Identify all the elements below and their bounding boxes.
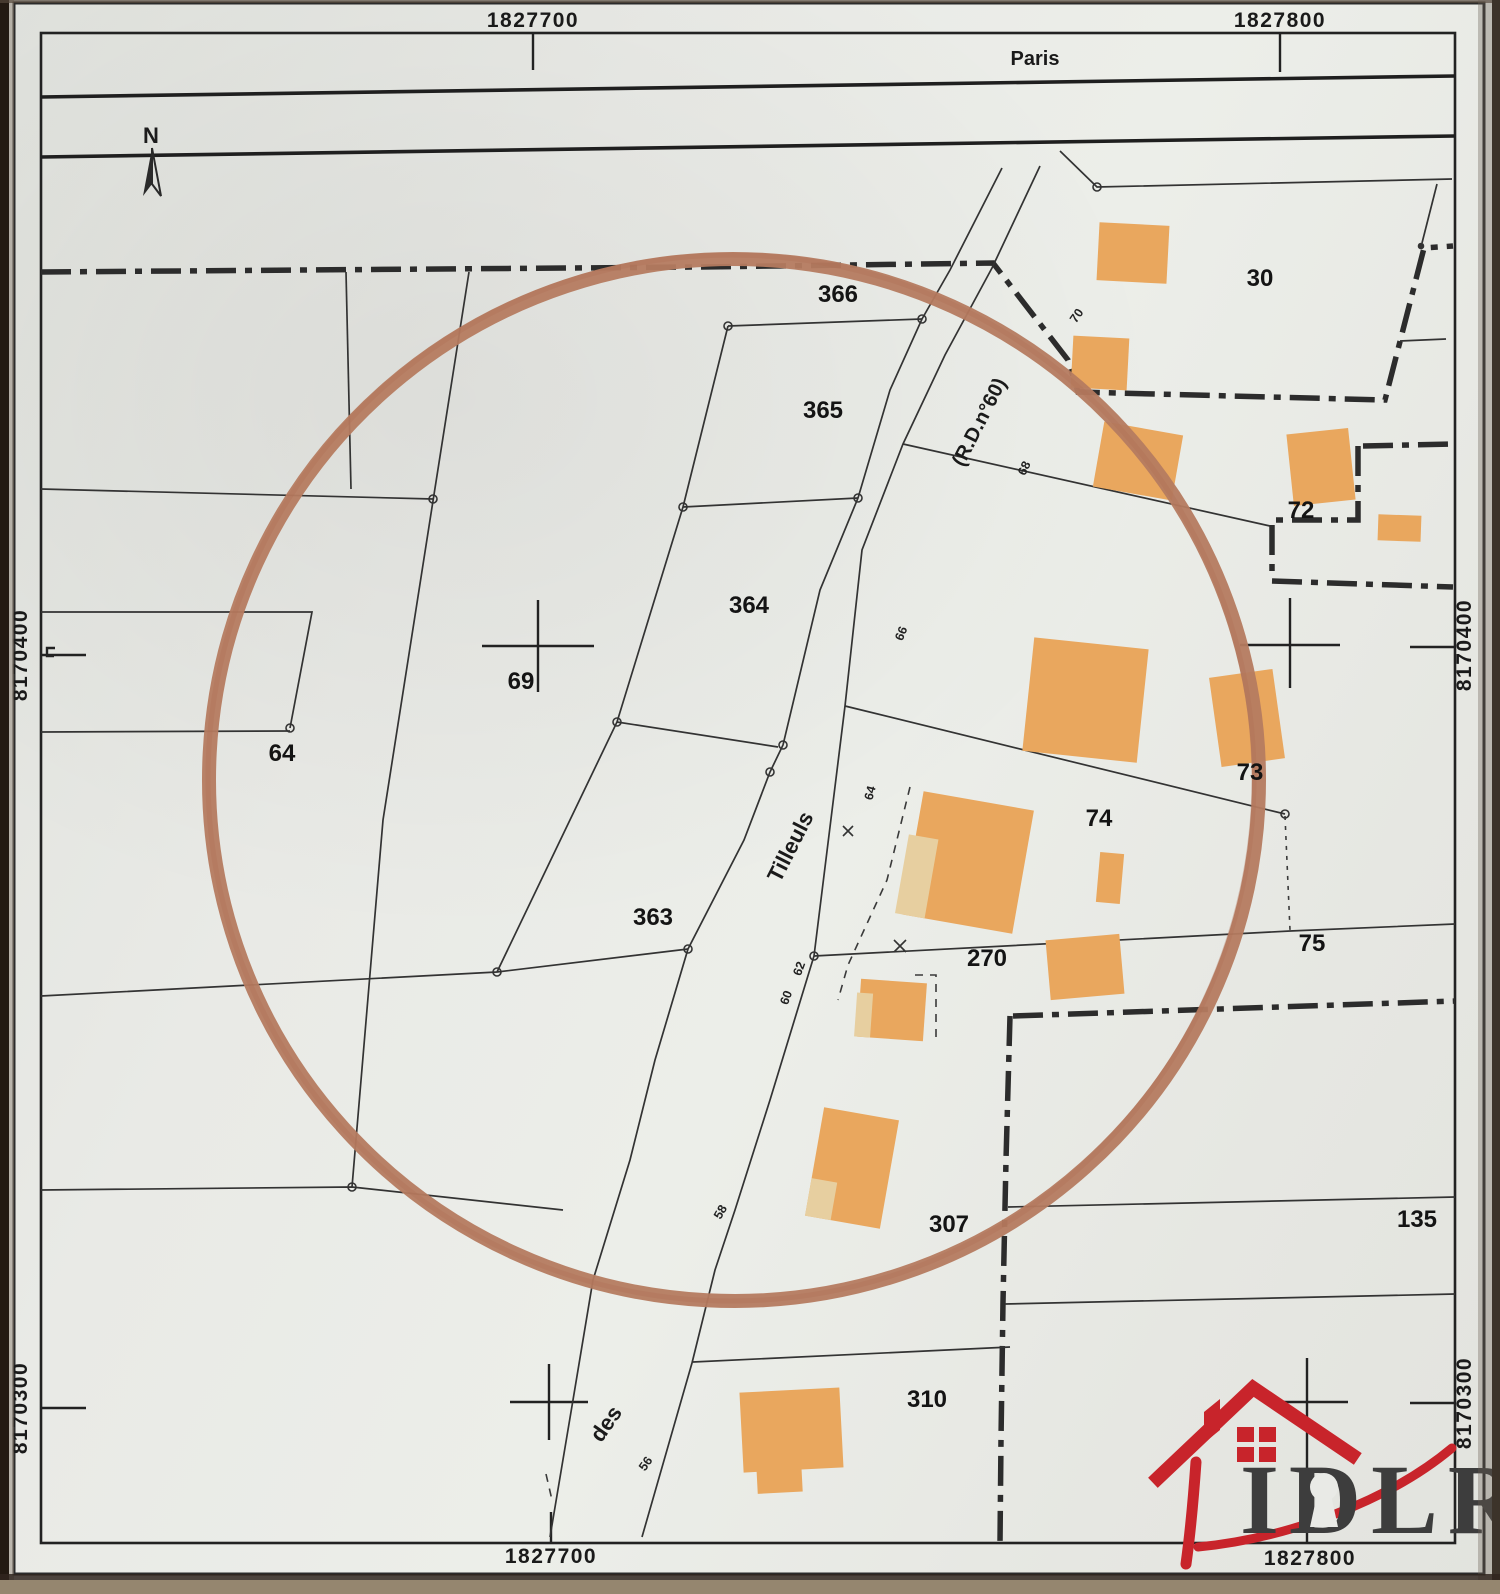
parcel-365: 365 (803, 397, 843, 424)
street-des: des (585, 1401, 627, 1446)
grid-x-1827700-bottom: 1827700 (505, 1545, 597, 1568)
parcel-30: 30 (1247, 265, 1274, 292)
road-paris: Paris (1011, 48, 1060, 70)
grid-x-1827700-top: 1827700 (487, 9, 579, 32)
parcel-364: 364 (729, 592, 770, 619)
photo-edges (0, 0, 1500, 1594)
circle-annotation (182, 232, 1285, 1328)
parcel-75: 75 (1299, 930, 1326, 957)
logo-wordmark: IDLR (1240, 1444, 1500, 1555)
addr-56: 56 (636, 1454, 655, 1473)
parcel-135: 135 (1397, 1206, 1437, 1233)
grid-x-1827800-top: 1827800 (1234, 9, 1326, 32)
parcel-73: 73 (1237, 759, 1264, 786)
parcel-366: 366 (818, 281, 858, 308)
grid-y-8170300-right: 8170300 (1453, 1357, 1476, 1449)
scanned-cadastral-map: 1827700182780018277001827800817040081703… (0, 0, 1500, 1594)
road-paris-band (41, 76, 1455, 157)
addr-70: 70 (1067, 306, 1086, 325)
addr-62: 62 (790, 960, 808, 978)
parcel-307: 307 (929, 1211, 969, 1238)
parcel-74: 74 (1086, 805, 1113, 832)
parcel-310: 310 (907, 1386, 947, 1413)
parcel-69: 69 (508, 668, 535, 695)
addr-66: 66 (892, 624, 910, 642)
addr-68: 68 (1015, 459, 1034, 478)
idlr-logo: IDLR (1158, 1388, 1500, 1564)
north-label: N (143, 123, 159, 148)
addr-64: 64 (862, 784, 879, 801)
addr-60: 60 (777, 989, 795, 1007)
street-tilleuls: Tilleuls (762, 807, 819, 886)
grid-y-8170400-right: 8170400 (1453, 599, 1476, 691)
parcel-363: 363 (633, 904, 673, 931)
addr-58: 58 (711, 1202, 730, 1221)
parcel-72: 72 (1288, 497, 1315, 524)
parcel-64: 64 (269, 740, 296, 767)
road-rd60: (R.D.n°60) (948, 375, 1011, 470)
parcel-270: 270 (967, 945, 1007, 972)
